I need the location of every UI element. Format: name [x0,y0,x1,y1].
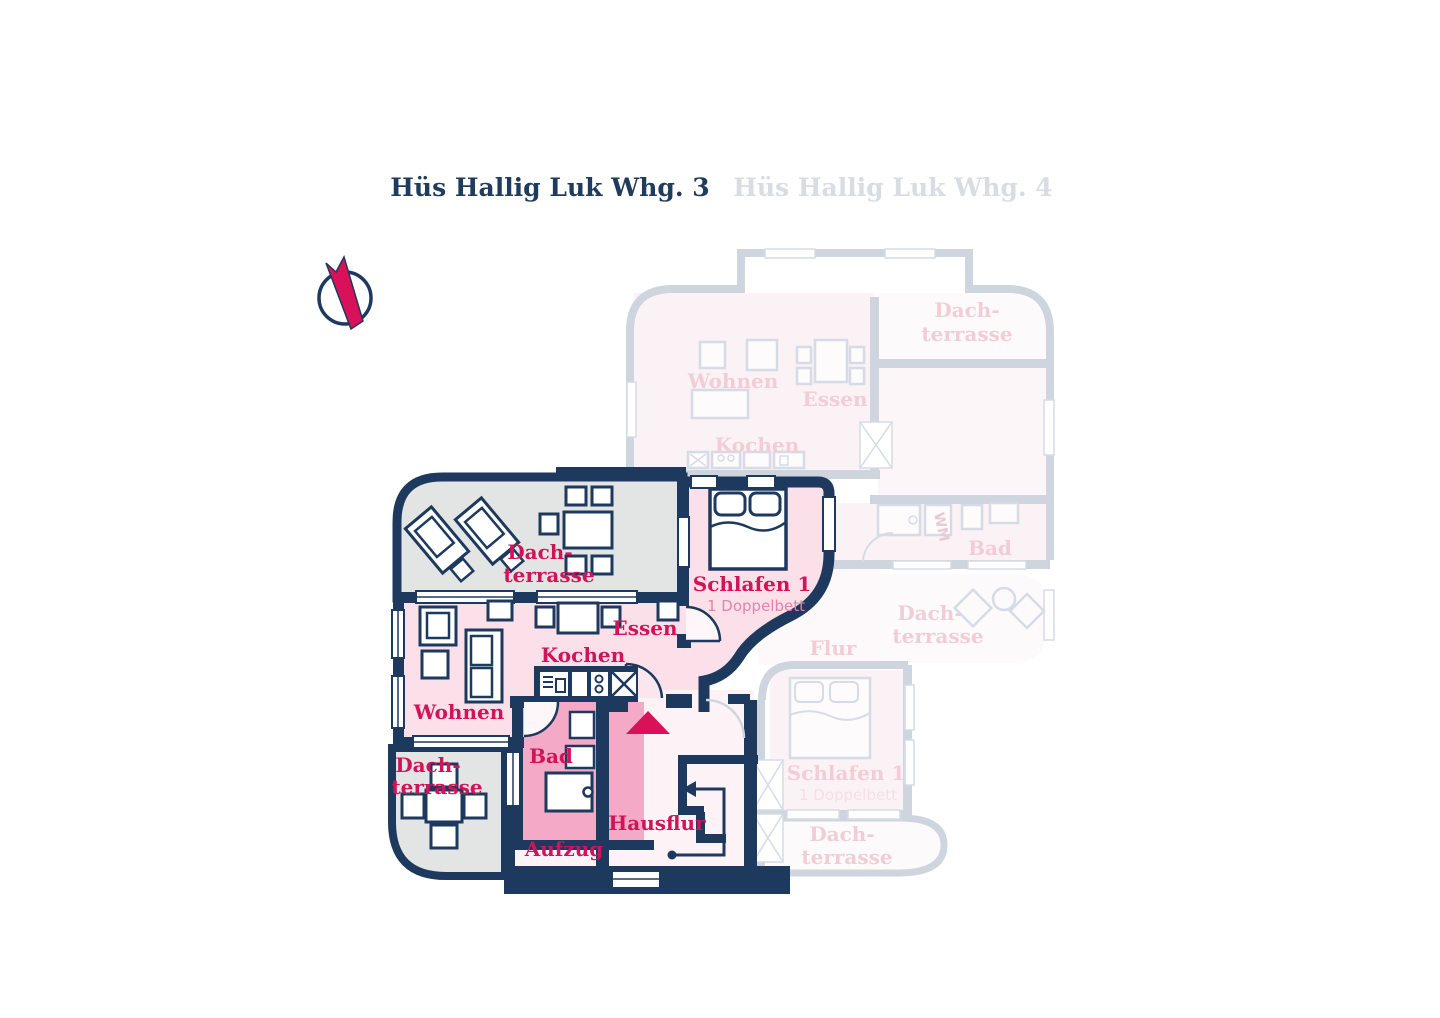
wall [666,694,692,708]
faded-chair-icon [797,368,811,384]
room-label-terrace-bottom: Dach- [395,753,460,777]
faded-wall [870,495,1050,504]
faded-window [1044,400,1054,455]
faded-window [1044,590,1054,640]
faded-room-label: Kochen [715,433,800,457]
toilet-icon [570,712,594,738]
faded-room-label: terrasse [801,845,892,869]
faded-chair-icon [850,347,864,363]
room-label-essen: Essen [612,616,677,640]
wall [596,702,609,848]
faded-room-label: Wohnen [687,369,779,393]
faded-sofa-icon [692,390,748,418]
faded-armchair-icon [747,340,777,370]
double-bed-icon [710,489,786,569]
faded-chair-icon [797,347,811,363]
faded-room-label: Dach- [809,822,874,846]
kitchen-counter-icon [534,666,638,702]
faded-room-sublabel: 1 Doppelbett [799,786,897,804]
faded-room-flur-upper [878,367,1046,497]
faded-window [627,382,636,437]
faded-window [848,810,900,819]
faded-room-label: Dach- [897,601,962,625]
room-sublabel-schlafen: 1 Doppelbett [707,597,805,615]
room-label-terrace-bottom: terrasse [391,775,482,799]
faded-window [968,561,1026,569]
floorplan-page: Dach- terrasse Wohnen Essen Kochen WM Ba… [0,0,1440,1018]
faded-table-icon [815,340,847,382]
faded-window [765,249,815,258]
faded-wall [878,359,1048,368]
room-label-aufzug: Aufzug [524,837,604,861]
faded-window [893,561,951,569]
page-title-faded: Hüs Hallig Luk Whg. 4 [733,173,1052,202]
faded-room-label: Schlafen 1 [787,761,905,785]
floorplan-canvas: Dach- terrasse Wohnen Essen Kochen WM Ba… [0,0,1440,1018]
faded-bed-icon [790,678,870,758]
faded-room-label: terrasse [892,624,983,648]
north-arrow-icon [319,257,371,329]
faded-room-label: Flur [810,636,857,660]
faded-room-label: Dach- [934,298,999,322]
wall [744,700,757,870]
faded-room-label: Bad [968,536,1012,560]
room-label-hausflur: Hausflur [608,811,706,835]
room-label-kochen: Kochen [541,643,626,667]
faded-room-label: Essen [802,387,867,411]
wall [556,467,686,480]
room-label-terrace-top: terrasse [503,563,594,587]
room-label-schlafen: Schlafen 1 [693,572,811,596]
page-title-active: Hüs Hallig Luk Whg. 3 [390,173,709,202]
room-label-bad: Bad [529,744,573,768]
faded-room-label: terrasse [921,322,1012,346]
room-label-terrace-top: Dach- [507,540,572,564]
faded-armchair-icon [700,342,725,368]
faded-window [787,810,839,819]
faded-window [905,740,914,785]
room-label-wohnen: Wohnen [413,700,505,724]
faded-chair-icon [850,368,864,384]
faded-window [885,249,935,258]
faded-window [905,685,914,730]
